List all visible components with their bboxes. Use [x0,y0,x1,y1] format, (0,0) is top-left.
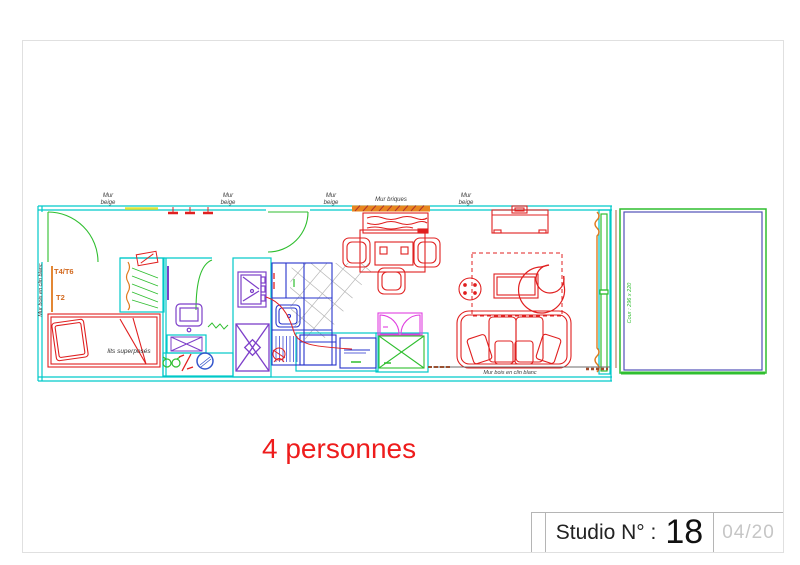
crossed-chest [379,336,424,368]
courtyard [616,209,766,373]
title-block-spacer [532,513,546,552]
page-reference: 04/20 [713,513,783,552]
studio-number: 18 [665,513,703,552]
wall-label-beige-1: Mur beige [88,193,128,207]
round-stamp-icon [197,353,213,369]
wall-label-wood-left: Mur bois en clin blanc [38,263,44,316]
sofa [457,311,571,368]
title-block-main: Studio N° : 18 [546,513,713,552]
floor-plan-drawing [0,0,800,565]
studio-label: Studio N° : [556,521,657,545]
cabinet-doors [378,313,422,335]
shower [236,324,269,371]
hall-door [268,212,308,252]
wall-label-beige-4: Mur beige [446,193,486,207]
occupancy-caption: 4 personnes [262,433,416,465]
washbasin [238,272,266,307]
title-block: Studio N° : 18 04/20 [531,512,783,552]
wardrobe [127,251,169,310]
unit-type-secondary: T2 [56,293,65,302]
wall-label-briques: Mur briques [361,197,421,204]
window [600,214,608,371]
armchair [519,265,565,313]
bathroom-door [196,260,212,310]
wall-label-wood-bottom: Mur bois en clin blanc [465,370,555,376]
bed-label: lits superposés [99,348,159,355]
unit-type-primary: T4/T6 [54,267,74,276]
desk-chair [176,304,202,332]
rug [472,253,562,316]
plant-scribble [208,323,228,329]
console-desk [492,206,548,233]
quarter-mark [179,354,193,371]
dishwasher [300,335,336,365]
appliance-box [340,338,376,368]
coffee-table [494,274,538,298]
bunk-bed [48,314,160,367]
kitchen-counter [272,263,332,365]
wall-label-beige-2: Mur beige [208,193,248,207]
side-table [459,278,481,300]
storage-box [171,337,202,351]
courtyard-label: Cour : 296 x 220 [627,283,633,324]
wall-label-beige-3: Mur beige [311,193,351,207]
brick-wall [352,206,430,212]
entrance-door [48,212,98,262]
